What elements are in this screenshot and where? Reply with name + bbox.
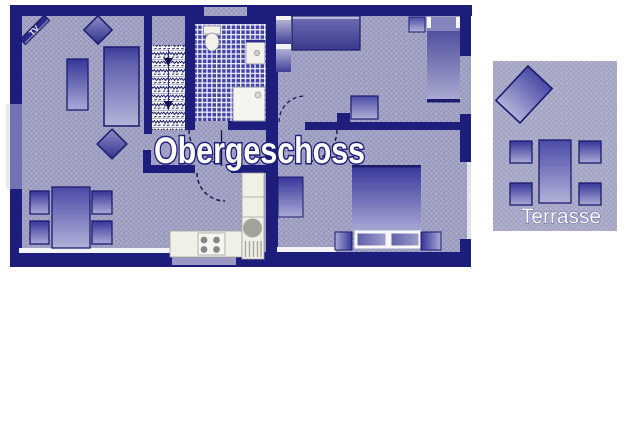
svg-text:Obergeschoss: Obergeschoss (154, 130, 365, 171)
svg-text:Terrasse: Terrasse (521, 205, 601, 228)
